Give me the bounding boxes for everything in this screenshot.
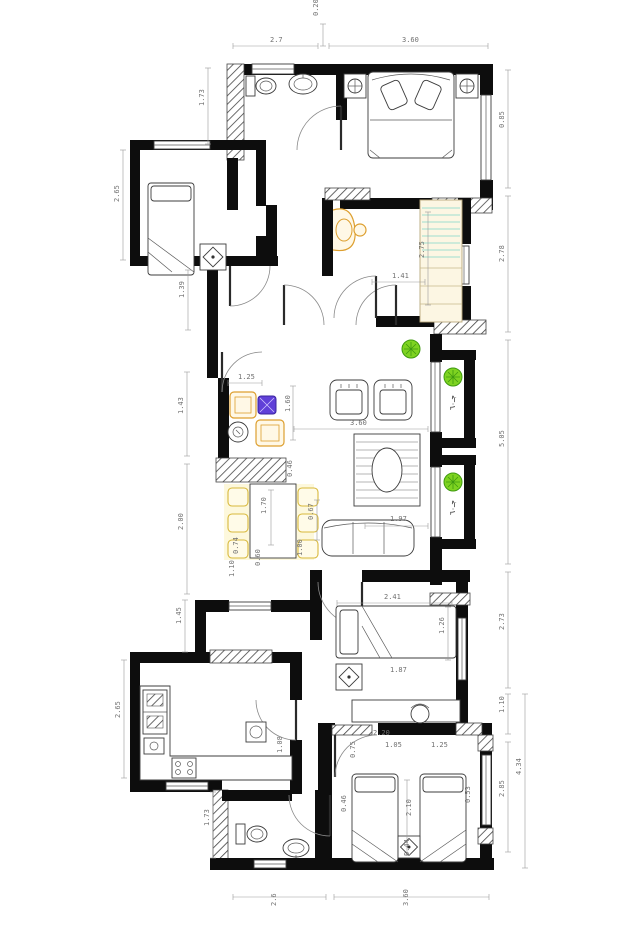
window-top-bathroom <box>252 64 294 74</box>
window-mid-bedroom <box>458 618 466 680</box>
dimension-label: 1.08 <box>276 736 284 753</box>
master-bed <box>368 72 454 158</box>
dimension-label: 3.60 <box>402 889 410 906</box>
plant-icon-1 <box>402 340 420 358</box>
dimension-label: 2.20 <box>373 729 390 737</box>
dimension-label: 1.73 <box>203 809 211 826</box>
furniture-layer <box>140 72 478 862</box>
dimension-label: 0.75 <box>349 741 357 758</box>
dimension-label: 2.6 <box>270 893 278 906</box>
armchair-living-2 <box>374 380 412 420</box>
dimension-label: 2.65 <box>113 185 121 202</box>
window-br-bedroom <box>482 755 491 825</box>
plant-icon-3 <box>444 473 462 491</box>
dimension-label: 1.25 <box>238 373 255 381</box>
door-upper-left-bedroom <box>230 266 270 306</box>
dimension-label: 1.43 <box>177 397 185 414</box>
window-hall <box>229 602 271 610</box>
armchair-living-1 <box>330 380 368 420</box>
master-nightstand-left <box>344 74 366 98</box>
single-bed-upper-left <box>148 183 194 275</box>
plant-icon-2 <box>444 368 462 386</box>
dimension-label: 2.00 <box>177 513 185 530</box>
window-master-right <box>481 95 491 180</box>
dimension-label: 1.10 <box>228 560 236 577</box>
master-nightstand-right <box>456 74 478 98</box>
dimension-label: 0.44 <box>403 839 411 856</box>
sofa-living <box>322 520 414 556</box>
dimension-label: 2.7 <box>270 36 283 44</box>
dimension-label: 1.70 <box>260 497 268 514</box>
dimension-label: 3.60 <box>402 36 419 44</box>
toilet-top <box>246 76 276 96</box>
sink-kitchen <box>144 738 164 754</box>
dimension-label: 2.78 <box>498 245 506 262</box>
window-bay-1 <box>431 362 440 432</box>
dimension-label: 1.39 <box>178 281 186 298</box>
dimension-label: 1.60 <box>284 395 292 412</box>
nightstand-upper-left <box>200 244 226 270</box>
kitchen-counter <box>140 686 292 780</box>
dimension-label: 2.65 <box>114 701 122 718</box>
door-top-bathroom <box>297 106 341 150</box>
dimension-label: 0.53 <box>464 786 472 803</box>
door-dressing <box>334 276 376 318</box>
dimension-label: 1.41 <box>392 272 409 280</box>
corner-armchair-1 <box>230 392 256 418</box>
twin-bed-left <box>352 774 398 862</box>
dimension-label: 0.46 <box>340 795 348 812</box>
window-tag-label: جـ٦٠ <box>448 395 457 410</box>
round-side-table <box>228 422 248 442</box>
sink-bottom <box>283 839 309 858</box>
nightstand-middle <box>336 664 362 690</box>
wardrobe-closet <box>420 200 462 322</box>
dimension-label: 1.25 <box>431 741 448 749</box>
sink-top <box>289 74 317 94</box>
stove-icon <box>172 758 196 778</box>
dimension-label: 1.10 <box>498 696 506 713</box>
dimension-label: 5.05 <box>498 430 506 447</box>
vanity-dressing <box>333 209 366 251</box>
window-kitchen <box>166 782 208 790</box>
desk-middle <box>352 700 460 723</box>
twin-bed-right <box>420 774 466 862</box>
dimension-label: 2.73 <box>498 613 506 630</box>
rug-with-table <box>354 434 420 506</box>
dimension-label: 2.85 <box>498 780 506 797</box>
dimension-label: 0.20 <box>312 0 320 16</box>
window-bay-2 <box>431 467 440 537</box>
window-bottom-bathroom <box>254 860 286 868</box>
window-upper-left-bedroom <box>154 141 210 149</box>
dimension-label: 0.74 <box>232 537 240 554</box>
dimension-label: 2.10 <box>405 799 413 816</box>
dimension-label: 1.05 <box>385 741 402 749</box>
door-corridor-left <box>284 285 324 325</box>
dimension-label: 1.45 <box>175 607 183 624</box>
dimension-label: 0.85 <box>498 111 506 128</box>
toilet-bottom <box>236 824 267 844</box>
corner-armchair-2 <box>256 420 284 446</box>
dimension-label: 2.75 <box>418 241 426 258</box>
floor-plan-drawing: 2.70.203.600.852.785.052.731.102.854.342… <box>0 0 626 940</box>
dimension-label: 1.97 <box>390 515 407 523</box>
dimension-label: 1.00 <box>296 539 304 556</box>
fridge-icon <box>143 690 167 734</box>
dimension-label: 4.34 <box>515 758 523 775</box>
dimension-label: 1.26 <box>438 617 446 634</box>
dimension-label: 2.41 <box>384 593 401 601</box>
side-table-purple <box>258 396 276 414</box>
window-tag-label: جـ٦٠ <box>448 500 457 515</box>
dimension-label: 0.67 <box>307 503 315 520</box>
floor-plan-page: 2.70.203.600.852.785.052.731.102.854.342… <box>0 0 626 940</box>
dimension-label: 1.73 <box>198 89 206 106</box>
dimension-label: 0.60 <box>254 549 262 566</box>
dimension-label: 3.60 <box>350 419 367 427</box>
washer-icon <box>246 722 266 742</box>
dimension-label: 1.87 <box>390 666 407 674</box>
dimension-label: 0.46 <box>286 460 294 477</box>
